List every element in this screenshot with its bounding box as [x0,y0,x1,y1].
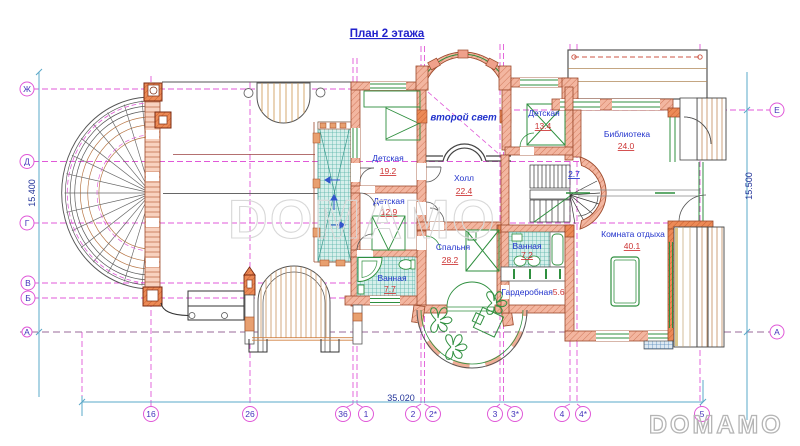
svg-text:4*: 4* [579,409,588,419]
svg-text:DOMAMO: DOMAMO [649,411,784,439]
svg-text:40.1: 40.1 [624,241,641,251]
svg-text:Б: Б [25,293,31,303]
svg-text:2*: 2* [429,409,438,419]
svg-text:1: 1 [364,409,369,419]
svg-text:Ж: Ж [23,84,31,94]
svg-text:Детская: Детская [528,108,560,118]
svg-text:24.0: 24.0 [618,141,635,151]
svg-text:13.4: 13.4 [535,121,552,131]
svg-text:В: В [25,278,31,288]
svg-text:4: 4 [560,409,565,419]
svg-text:второй свет: второй свет [430,113,497,124]
svg-text:Холл: Холл [454,173,474,183]
svg-text:7.7: 7.7 [384,284,396,294]
svg-text:26: 26 [245,409,255,419]
svg-text:Гардеробная5.6: Гардеробная5.6 [501,287,565,297]
svg-text:3: 3 [493,409,498,419]
svg-text:DOMAMO: DOMAMO [228,188,497,250]
svg-text:Библиотека: Библиотека [604,129,650,139]
svg-text:19.2: 19.2 [380,166,397,176]
svg-text:Ванная: Ванная [377,273,407,283]
svg-text:15.500: 15.500 [744,172,754,200]
svg-text:Комната отдыха: Комната отдыха [601,229,665,239]
svg-text:3*: 3* [511,409,520,419]
svg-text:А: А [774,327,780,337]
svg-text:Д: Д [24,157,30,167]
svg-text:2.7: 2.7 [568,169,580,179]
svg-text:Детская: Детская [372,153,404,163]
svg-text:План 2 этажа: План 2 этажа [350,28,425,40]
svg-text:7.2: 7.2 [521,250,533,260]
svg-text:15.400: 15.400 [27,179,37,207]
svg-text:Г: Г [25,218,30,228]
svg-text:А: А [24,327,30,337]
svg-text:36: 36 [338,409,348,419]
svg-text:2: 2 [411,409,416,419]
svg-text:Е: Е [774,105,780,115]
svg-text:28.2: 28.2 [442,255,459,265]
svg-text:35.020: 35.020 [387,393,415,403]
svg-text:16: 16 [146,409,156,419]
